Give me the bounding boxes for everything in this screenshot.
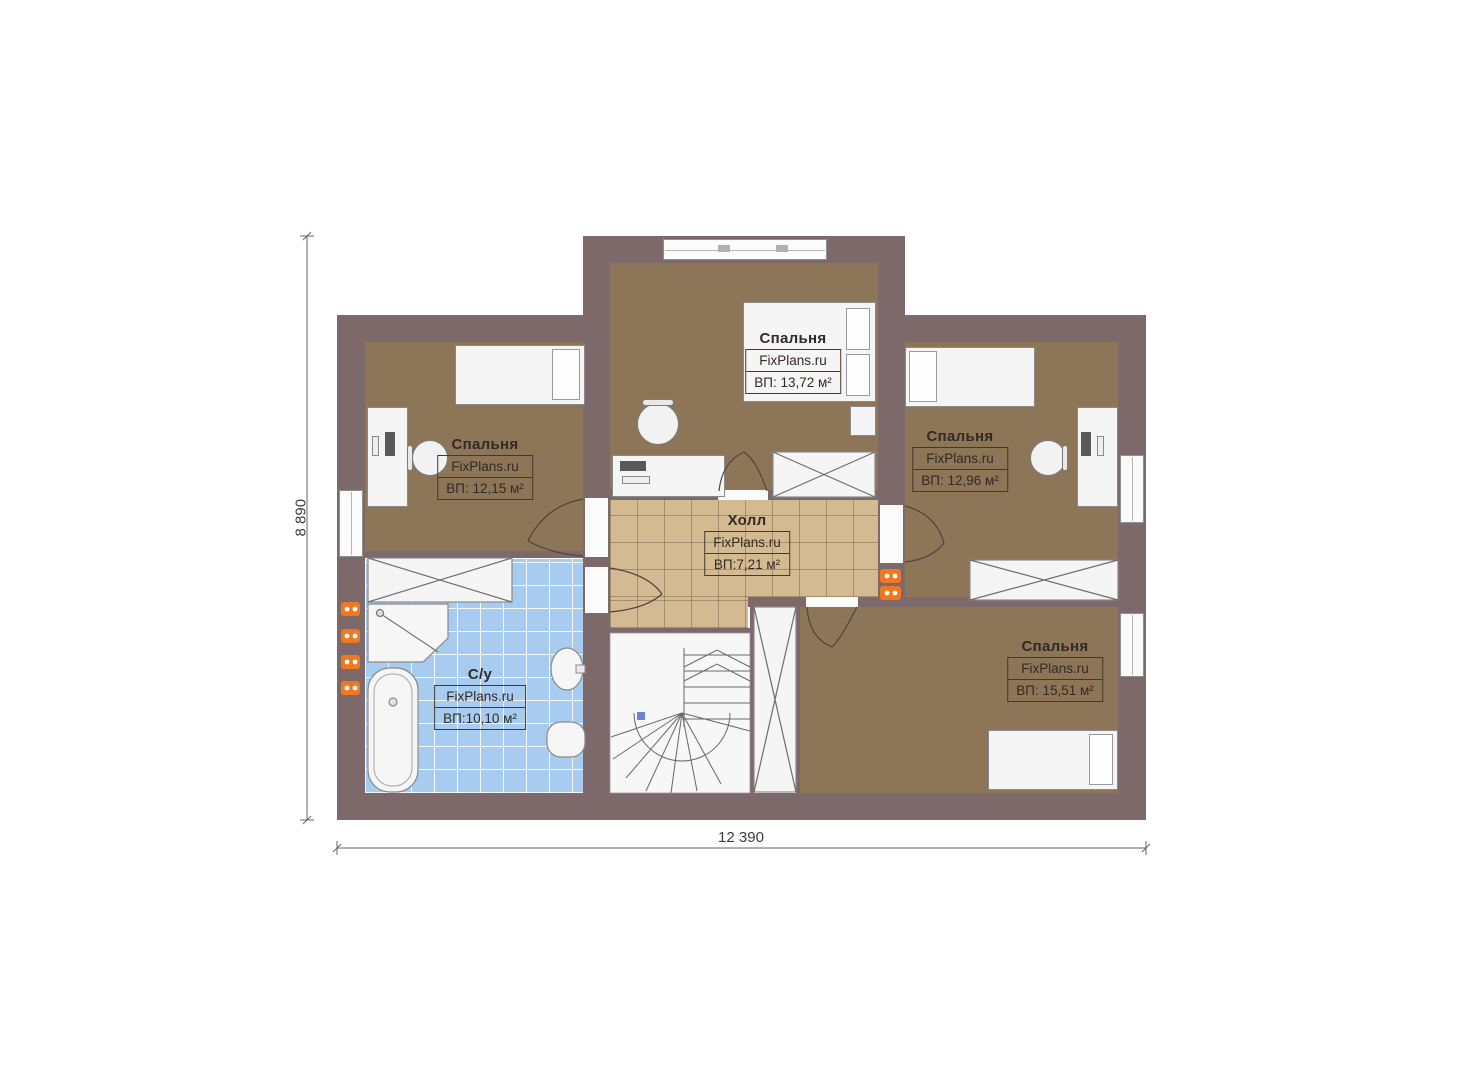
watermark: FixPlans.ru [435,686,525,707]
room-tag: FixPlans.ru ВП:10,10 м² [434,685,526,730]
stair-direction-marker [637,712,645,720]
room-area: ВП: 15,51 м² [1008,679,1102,701]
door-arc-bedroom-left [528,499,583,556]
room-name: С/у [434,666,526,683]
closet-by-stairs [754,607,796,792]
watermark: FixPlans.ru [1008,658,1102,679]
wardrobe-left-bedroom [368,558,512,602]
radiator-icon [341,681,360,695]
radiator-icon [341,629,360,643]
room-label-bathroom: С/у FixPlans.ru ВП:10,10 м² [434,666,526,730]
dimension-height-label: 8 890 [293,491,310,537]
watermark: FixPlans.ru [438,456,532,477]
toilet [547,722,585,757]
room-label-hall: Холл FixPlans.ru ВП:7,21 м² [704,512,790,576]
room-area: ВП: 12,15 м² [438,477,532,499]
wardrobe-top-bedroom [773,452,875,497]
room-label-bedroom-right: Спальня FixPlans.ru ВП: 12,96 м² [912,428,1008,492]
room-area: ВП: 13,72 м² [746,371,840,393]
watermark: FixPlans.ru [913,448,1007,469]
radiator-icon [880,586,901,600]
room-name: Спальня [912,428,1008,445]
staircase [610,633,750,793]
room-name: Спальня [745,330,841,347]
room-tag: FixPlans.ru ВП: 13,72 м² [745,349,841,394]
room-area: ВП:10,10 м² [435,707,525,729]
room-tag: FixPlans.ru ВП: 12,15 м² [437,455,533,500]
room-area: ВП: 12,96 м² [913,469,1007,491]
watermark: FixPlans.ru [705,532,789,553]
room-tag: FixPlans.ru ВП:7,21 м² [704,531,790,576]
door-arc-bedroom-bottom-right [807,607,857,647]
radiator-icon [341,602,360,616]
room-tag: FixPlans.ru ВП: 15,51 м² [1007,657,1103,702]
room-area: ВП:7,21 м² [705,553,789,575]
radiator-icon [341,655,360,669]
watermark: FixPlans.ru [746,350,840,371]
room-name: Холл [704,512,790,529]
door-arc-bedroom-right [905,506,944,562]
room-name: Спальня [1007,638,1103,655]
room-label-bedroom-bottom-right: Спальня FixPlans.ru ВП: 15,51 м² [1007,638,1103,702]
room-label-bedroom-left: Спальня FixPlans.ru ВП: 12,15 м² [437,436,533,500]
room-tag: FixPlans.ru ВП: 12,96 м² [912,447,1008,492]
room-name: Спальня [437,436,533,453]
dimension-width-label: 12 390 [718,829,764,846]
door-arc-bathroom [610,568,662,612]
wardrobe-right-bedroom [970,560,1118,600]
floor-plan-canvas: Спальня FixPlans.ru ВП: 13,72 м² Спальня… [0,0,1474,1080]
shower [368,604,448,662]
sink [551,648,585,690]
room-label-bedroom-top: Спальня FixPlans.ru ВП: 13,72 м² [745,330,841,394]
radiator-icon [880,569,901,583]
bathtub [368,668,418,792]
door-arc-bedroom-top [719,452,767,491]
